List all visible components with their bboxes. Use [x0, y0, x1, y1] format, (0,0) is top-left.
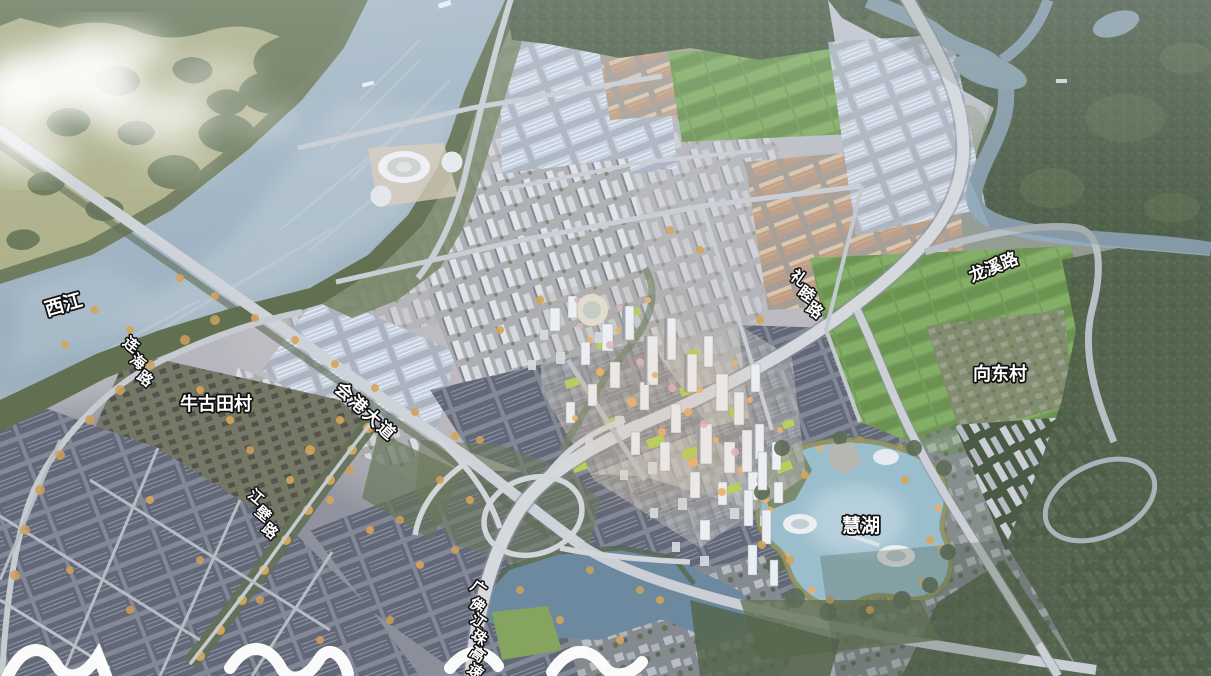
svg-text:向东村: 向东村 — [973, 363, 1027, 384]
svg-text:牛古田村: 牛古田村 — [180, 393, 252, 414]
svg-text:慧湖: 慧湖 — [842, 514, 880, 537]
